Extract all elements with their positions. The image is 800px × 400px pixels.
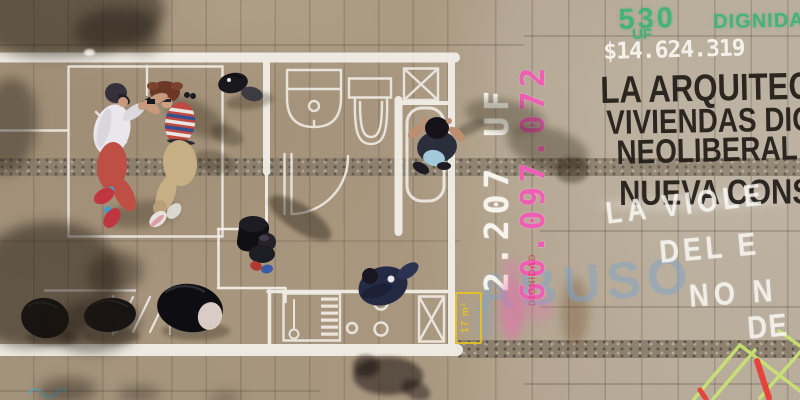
leaf-shadow-1 <box>38 378 96 400</box>
leaf-shadow-3 <box>210 392 240 400</box>
white-paint-spec <box>84 49 95 56</box>
person-walking-bottom <box>353 259 421 312</box>
leaf-shadow-2 <box>118 386 160 400</box>
aerial-photo: ABUSO 530 UF DIGNIDAD $14.624.319 LA ARQ… <box>0 0 800 400</box>
person-backpack-center <box>236 216 276 274</box>
person-crouching <box>405 117 467 177</box>
